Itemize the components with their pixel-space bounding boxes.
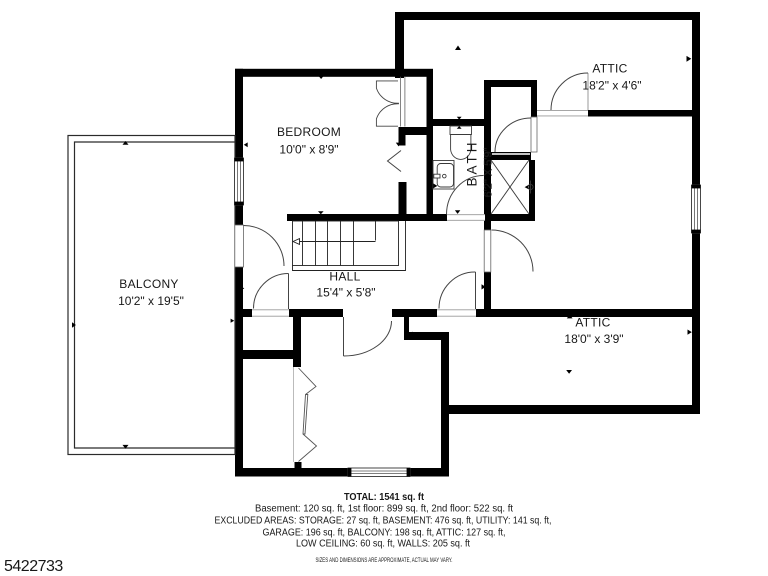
svg-text:15'4" x 5'8": 15'4" x 5'8"	[316, 285, 375, 299]
svg-text:BALCONY: BALCONY	[119, 277, 178, 291]
svg-text:SIZES AND DIMENSIONS ARE APPRO: SIZES AND DIMENSIONS ARE APPROXIMATE, AC…	[316, 557, 453, 564]
svg-text:ATTIC: ATTIC	[575, 316, 610, 330]
svg-text:10'2" x 19'5": 10'2" x 19'5"	[118, 294, 184, 308]
svg-text:BATH: BATH	[465, 139, 480, 186]
svg-text:LOW CEILING: 60 sq. ft, WALLS:: LOW CEILING: 60 sq. ft, WALLS: 205 sq. f…	[296, 538, 470, 549]
svg-text:ATTIC: ATTIC	[592, 61, 627, 75]
svg-text:18'2" x 4'6": 18'2" x 4'6"	[582, 78, 641, 92]
svg-text:EXCLUDED AREAS: STORAGE: 27 sq: EXCLUDED AREAS: STORAGE: 27 sq. ft, BASE…	[215, 516, 552, 527]
svg-text:10'0" x 8'9": 10'0" x 8'9"	[279, 143, 338, 157]
svg-text:GARAGE: 196 sq. ft, BALCONY: 1: GARAGE: 196 sq. ft, BALCONY: 198 sq. ft,…	[263, 528, 506, 539]
svg-text:Basement: 120 sq. ft, 1st floo: Basement: 120 sq. ft, 1st floor: 899 sq.…	[255, 504, 513, 515]
svg-text:HALL: HALL	[329, 270, 360, 284]
svg-text:6'2" X 5'9": 6'2" X 5'9"	[483, 147, 495, 197]
svg-text:5422733: 5422733	[4, 558, 63, 575]
svg-text:TOTAL: 1541 sq. ft: TOTAL: 1541 sq. ft	[344, 492, 425, 503]
svg-text:18'0" x 3'9": 18'0" x 3'9"	[564, 332, 623, 346]
svg-text:BEDROOM: BEDROOM	[277, 125, 341, 139]
